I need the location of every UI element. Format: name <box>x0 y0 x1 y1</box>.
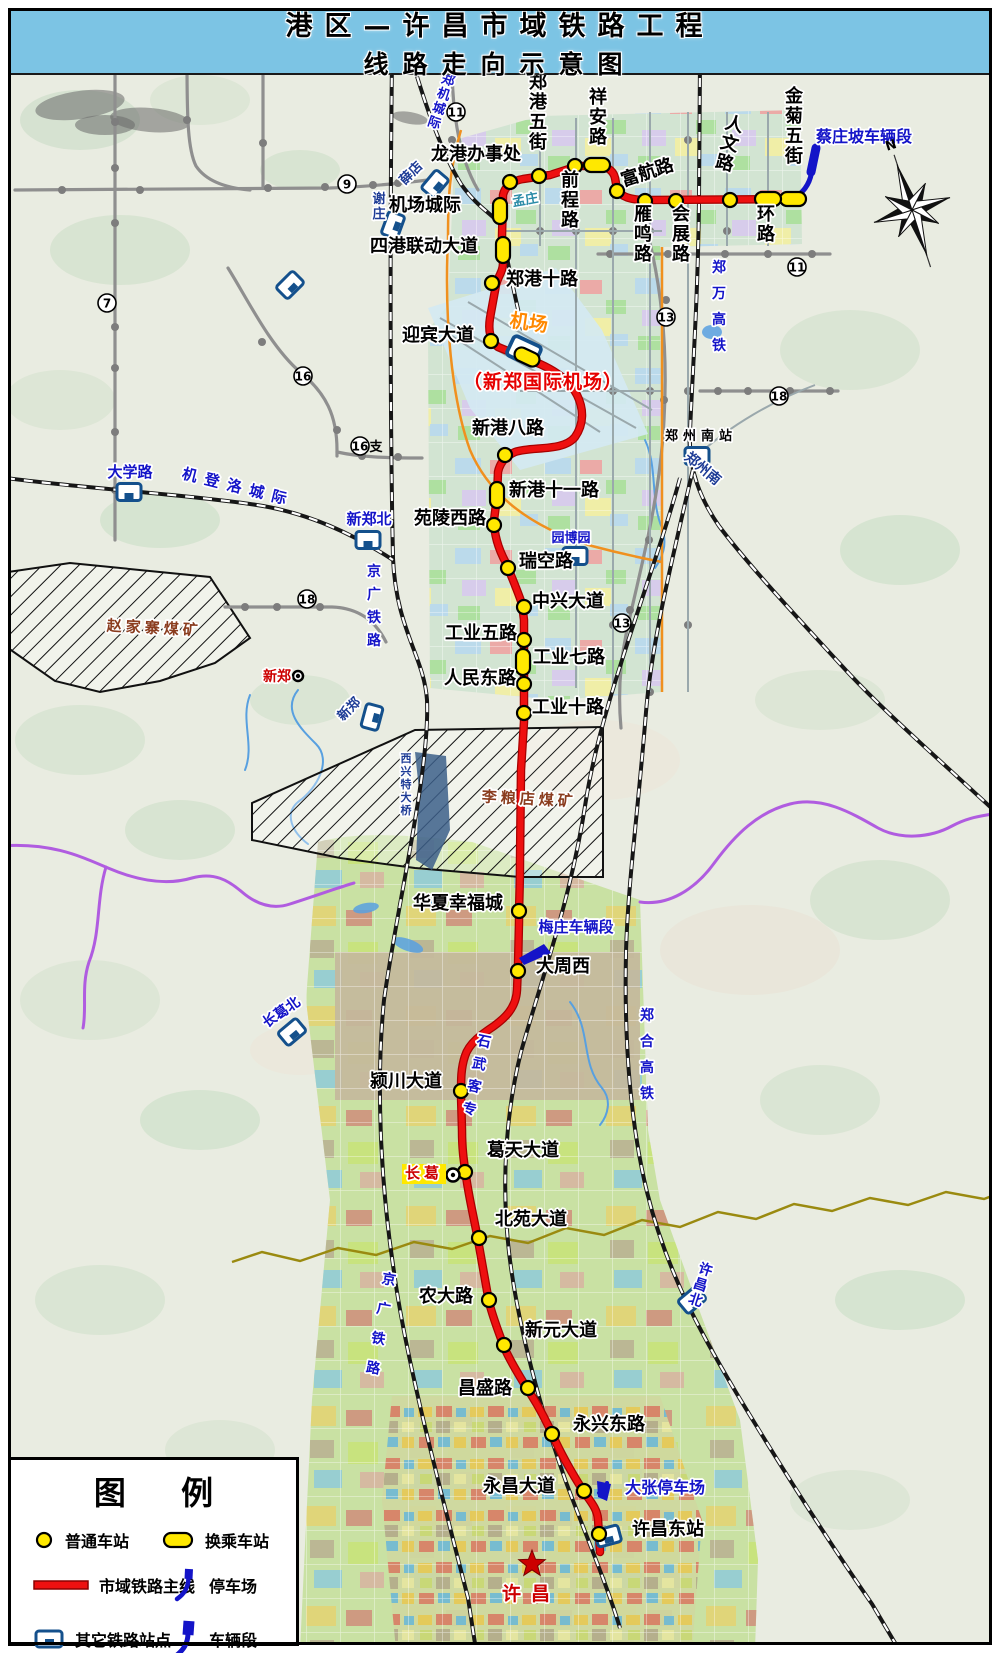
label-颍川大道: 颍川大道 <box>370 1070 442 1092</box>
legend-box: 图 例 普通车站 换乘车站 市域铁路主线 <box>8 1457 299 1646</box>
metro-station-dot <box>744 387 752 395</box>
label-西兴特大桥: 西兴特大桥 <box>401 752 413 817</box>
legend-row-other: 其它铁路站点 车辆段 <box>11 1618 296 1653</box>
label-迎宾大道: 迎宾大道 <box>402 324 474 346</box>
label-新郑: 新郑 <box>263 668 291 685</box>
parking-lot-icon <box>173 1566 199 1604</box>
svg-text:11: 11 <box>448 106 465 120</box>
legend-transfer-station-label: 换乘车站 <box>205 1528 269 1552</box>
蔡庄坡车辆段 <box>811 148 816 172</box>
legend-row-stations: 普通车站 换乘车站 <box>11 1528 296 1552</box>
metro-station-dot <box>273 603 281 611</box>
station-四港联动大道 <box>496 237 510 263</box>
label-郑港五街: 郑港五街 <box>528 71 548 153</box>
station-人民东路 <box>517 677 531 691</box>
legend-row-line: 市域铁路主线 停车场 <box>11 1566 296 1604</box>
label-大学路: 大学路 <box>107 463 153 481</box>
station-大周西 <box>511 964 525 978</box>
station-郑港五街 <box>532 169 546 183</box>
metro-station-dot <box>316 603 324 611</box>
line-number-18: 18 <box>770 387 788 405</box>
label-苑陵西路: 苑陵西路 <box>414 507 487 529</box>
label-（新郑国际机场）: （新郑国际机场） <box>463 370 623 393</box>
station-富航路 <box>610 184 624 198</box>
legend-other-station-label: 其它铁路站点 <box>75 1627 171 1651</box>
label-许昌东站: 许昌东站 <box>632 1518 704 1540</box>
legend-title: 图 例 <box>11 1468 296 1514</box>
line-number-9: 9 <box>338 175 356 193</box>
svg-text:11: 11 <box>789 261 806 275</box>
metro-station-dot <box>264 184 272 192</box>
station-苑陵西路 <box>487 518 501 532</box>
station-中兴大道 <box>517 600 531 614</box>
route-map-canvas: 9111171616支18181313 金菊五街环路人文路会展路雁鸣路富航路祥安… <box>0 0 1000 1653</box>
line-number-16: 16 <box>294 367 312 385</box>
svg-text:18: 18 <box>299 593 316 607</box>
metro-station-dot <box>826 387 834 395</box>
label-祥安路: 祥安路 <box>589 86 608 148</box>
station-永昌大道 <box>577 1484 591 1498</box>
svg-text:支: 支 <box>368 439 383 455</box>
label-梅庄车辆段: 梅庄车辆段 <box>538 918 613 936</box>
label-大张停车场: 大张停车场 <box>625 1478 705 1497</box>
label-金菊五街: 金菊五街 <box>784 85 804 167</box>
line-number-18: 18 <box>298 590 316 608</box>
metro-station-dot <box>764 250 772 258</box>
label-农大路: 农大路 <box>418 1285 474 1307</box>
station-人文路 <box>723 193 737 207</box>
metro-station-dot <box>58 186 66 194</box>
metro-station-dot <box>448 136 456 144</box>
line-number-16支: 16支 <box>351 437 383 455</box>
label-华夏幸福城: 华夏幸福城 <box>413 892 503 914</box>
station-机场城际 <box>493 198 507 224</box>
label-工业五路: 工业五路 <box>445 622 518 644</box>
line-number-11: 11 <box>447 103 465 121</box>
station-工业五路 <box>517 633 531 647</box>
label-前程路: 前程路 <box>561 169 580 231</box>
station-新元大道 <box>497 1338 511 1352</box>
metro-station-dot <box>111 219 119 227</box>
line-number-7: 7 <box>98 294 116 312</box>
svg-text:13: 13 <box>658 311 675 325</box>
line-number-13: 13 <box>613 614 631 632</box>
other-railway-station-icon <box>117 484 141 501</box>
station-瑞空路 <box>501 561 515 575</box>
svg-text:16: 16 <box>295 370 312 384</box>
label-会展路: 会展路 <box>672 203 691 265</box>
normal-station-icon <box>33 1529 55 1551</box>
svg-text:16: 16 <box>352 440 369 454</box>
legend-normal-station-label: 普通车站 <box>65 1528 129 1552</box>
line-number-11: 11 <box>788 258 806 276</box>
metro-station-dot <box>664 250 672 258</box>
label-工业七路: 工业七路 <box>533 646 606 668</box>
label-龙港办事处: 龙港办事处 <box>431 143 522 165</box>
label-瑞空路: 瑞空路 <box>519 550 574 572</box>
svg-text:9: 9 <box>343 178 351 192</box>
label-昌盛路: 昌盛路 <box>458 1377 513 1399</box>
label-永兴东路: 永兴东路 <box>572 1413 646 1435</box>
metro-station-dot <box>721 250 729 258</box>
label-园博园: 园博园 <box>551 530 590 546</box>
station-郑港十路 <box>485 276 499 290</box>
label-新港十一路: 新港十一路 <box>509 479 600 501</box>
station-华夏幸福城 <box>512 904 526 918</box>
label-工业十路: 工业十路 <box>532 696 605 718</box>
station-龙港办事处 <box>503 175 517 189</box>
label-环路: 环路 <box>757 204 776 245</box>
label-机场城际: 机场城际 <box>389 194 461 216</box>
label-新郑北: 新郑北 <box>346 510 391 528</box>
label-长葛: 长葛 <box>405 1164 443 1182</box>
title-banner: 港区—许昌市域铁路工程 线路走向示意图 <box>11 11 989 75</box>
station-新港八路 <box>498 448 512 462</box>
station-工业七路 <box>516 649 530 675</box>
label-新港八路: 新港八路 <box>472 417 545 439</box>
metro-station-dot <box>808 250 816 258</box>
station-迎宾大道 <box>484 334 498 348</box>
label-永昌大道: 永昌大道 <box>482 1475 555 1497</box>
station-工业十路 <box>517 706 531 720</box>
map-page: 9111171616支18181313 金菊五街环路人文路会展路雁鸣路富航路祥安… <box>0 0 1000 1653</box>
metro-station-dot <box>714 387 722 395</box>
metro-station-dot <box>111 428 119 436</box>
svg-text:18: 18 <box>771 390 788 404</box>
station-祥安路 <box>584 158 610 172</box>
metro-station-dot <box>241 603 249 611</box>
station-许昌东站 <box>592 1527 606 1541</box>
label-蔡庄坡车辆段: 蔡庄坡车辆段 <box>815 127 913 146</box>
metro-station-dot <box>111 118 119 126</box>
label-大周西: 大周西 <box>536 955 590 977</box>
other-railway-station-icon <box>356 532 380 549</box>
legend-depot-label: 车辆段 <box>209 1627 257 1651</box>
label-许昌: 许昌 <box>502 1582 560 1605</box>
metro-station-dot <box>183 116 191 124</box>
label-郑港十路: 郑港十路 <box>506 268 579 290</box>
station-金菊五街 <box>780 192 806 206</box>
station-北苑大道 <box>472 1231 486 1245</box>
metro-station-dot <box>394 453 402 461</box>
depot-icon <box>173 1618 199 1653</box>
metro-station-dot <box>136 186 144 194</box>
label-郑州南站: 郑州南站 <box>665 428 737 444</box>
metro-station-dot <box>333 426 341 434</box>
metro-station-dot <box>259 139 267 147</box>
label-中兴大道: 中兴大道 <box>532 590 604 612</box>
label-雁鸣路: 雁鸣路 <box>634 204 653 265</box>
mainline-icon <box>33 1578 89 1592</box>
other-railway-station-icon <box>33 1627 65 1651</box>
line-number-13: 13 <box>657 308 675 326</box>
station-新港十一路 <box>490 482 504 508</box>
metro-station-dot <box>369 181 377 189</box>
metro-station-dot <box>111 364 119 372</box>
metro-station-dot <box>111 323 119 331</box>
transfer-station-icon <box>161 1529 195 1551</box>
label-四港联动大道: 四港联动大道 <box>370 235 478 257</box>
svg-text:13: 13 <box>614 617 631 631</box>
map-title-line1: 港区—许昌市域铁路工程 <box>286 4 715 43</box>
label-谢庄: 谢庄 <box>372 191 385 222</box>
metro-station-dot <box>321 183 329 191</box>
legend-parking-label: 停车场 <box>209 1573 257 1597</box>
station-永兴东路 <box>545 1427 559 1441</box>
map-title-line2: 线路走向示意图 <box>363 45 636 81</box>
metro-station-dot <box>626 606 634 614</box>
station-昌盛路 <box>521 1381 535 1395</box>
metro-station-dot <box>258 338 266 346</box>
label-葛天大道: 葛天大道 <box>486 1139 559 1161</box>
svg-text:7: 7 <box>103 297 111 311</box>
label-新元大道: 新元大道 <box>525 1319 597 1341</box>
label-北苑大道: 北苑大道 <box>495 1208 567 1230</box>
metro-station-dot <box>111 164 119 172</box>
station-农大路 <box>482 1293 496 1307</box>
label-人民东路: 人民东路 <box>444 667 517 689</box>
